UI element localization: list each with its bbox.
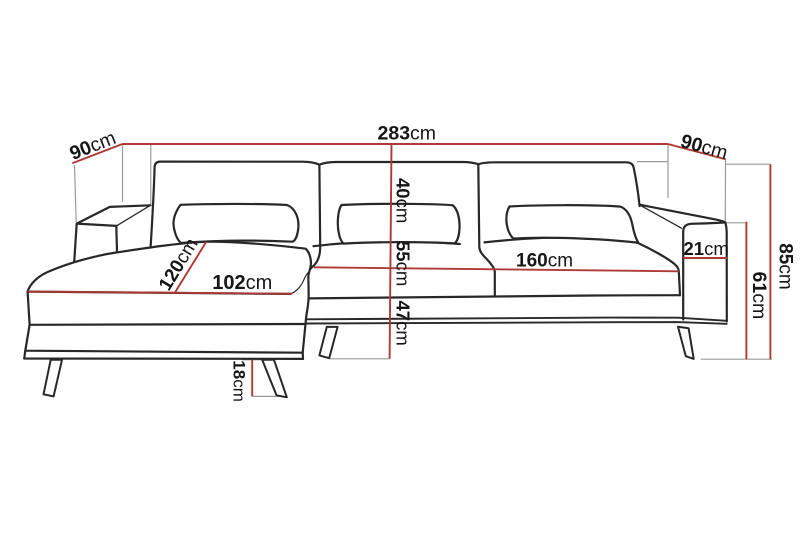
svg-text:160cm: 160cm <box>516 251 573 272</box>
svg-text:18cm: 18cm <box>230 360 249 402</box>
svg-text:21cm: 21cm <box>684 238 729 259</box>
svg-text:55cm: 55cm <box>393 241 414 286</box>
svg-text:47cm: 47cm <box>393 301 414 346</box>
svg-text:85cm: 85cm <box>774 243 795 289</box>
svg-text:40cm: 40cm <box>393 178 414 223</box>
svg-text:283cm: 283cm <box>378 123 437 145</box>
svg-text:102cm: 102cm <box>212 272 272 294</box>
svg-text:61cm: 61cm <box>748 272 770 320</box>
